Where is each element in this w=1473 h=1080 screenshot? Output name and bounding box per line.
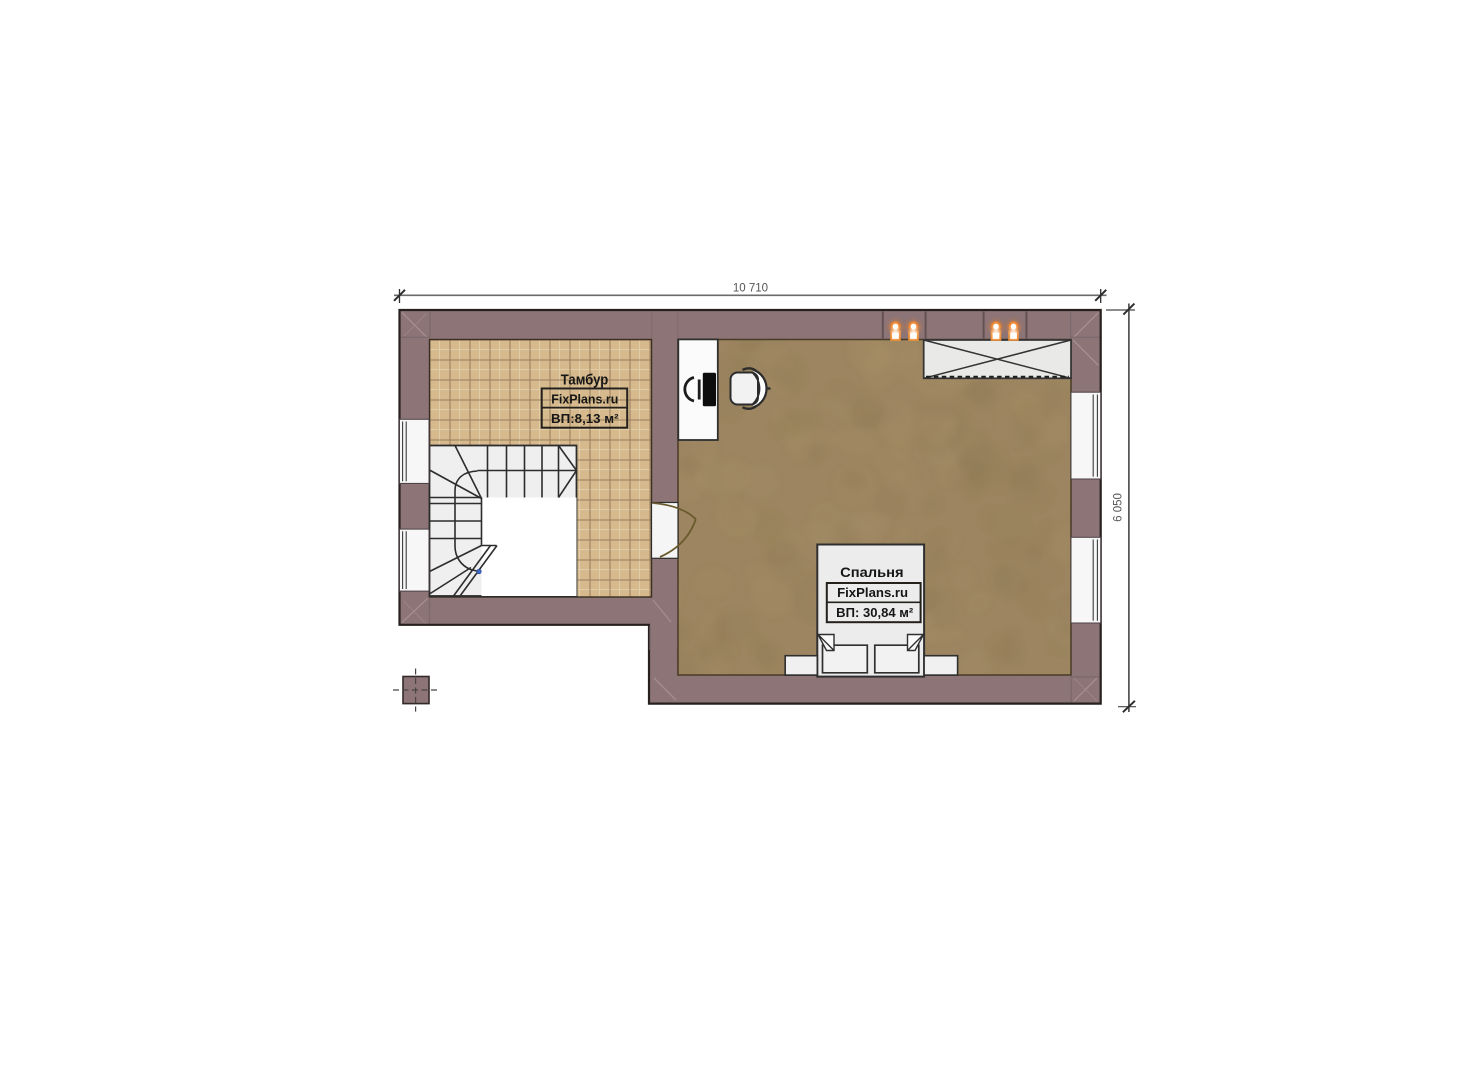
svg-text:FixPlans.ru: FixPlans.ru xyxy=(551,391,618,406)
svg-text:Спальня: Спальня xyxy=(840,565,904,580)
svg-text:10 710: 10 710 xyxy=(733,283,768,295)
svg-text:6 050: 6 050 xyxy=(1113,493,1125,522)
svg-text:FixPlans.ru: FixPlans.ru xyxy=(837,585,908,600)
svg-text:ВП:8,13 м²: ВП:8,13 м² xyxy=(551,411,619,426)
svg-text:ВП: 30,84 м²: ВП: 30,84 м² xyxy=(836,605,914,620)
svg-text:Тамбур: Тамбур xyxy=(561,372,609,389)
